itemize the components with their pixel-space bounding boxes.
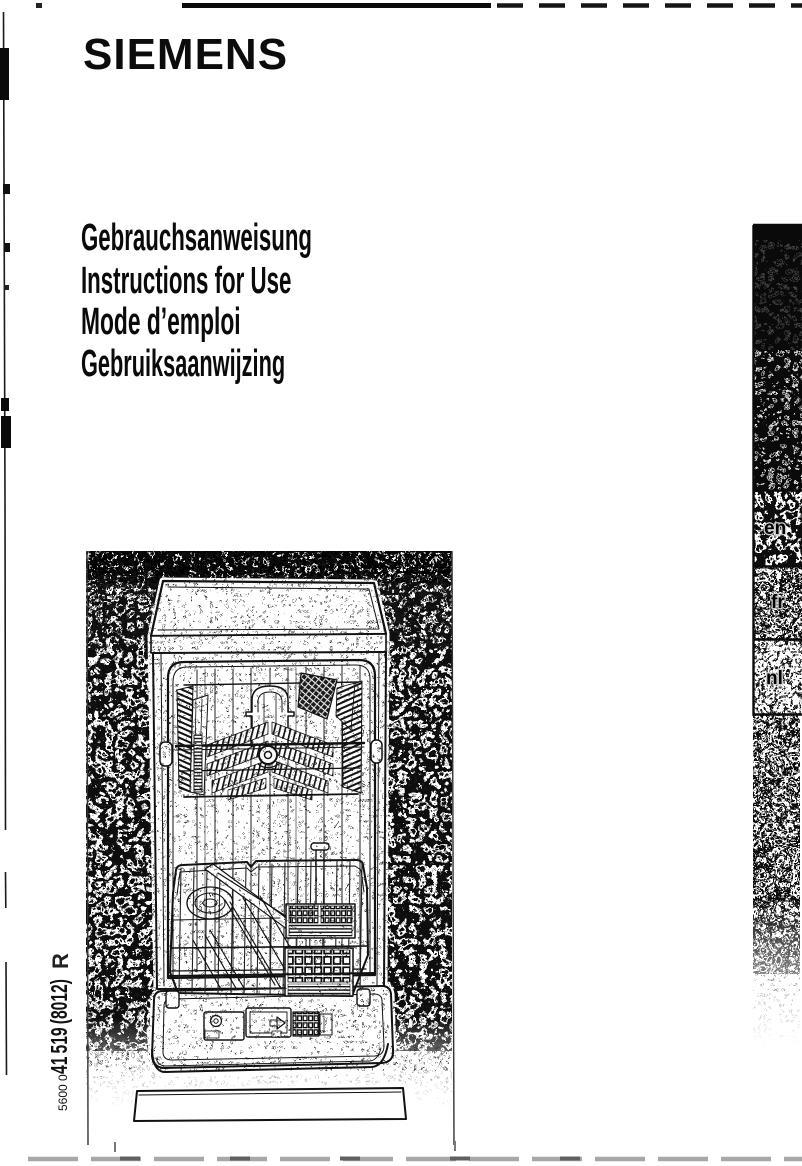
svg-text:nl: nl bbox=[766, 668, 783, 689]
svg-text:en: en bbox=[764, 518, 786, 539]
svg-text:fr: fr bbox=[771, 592, 785, 613]
